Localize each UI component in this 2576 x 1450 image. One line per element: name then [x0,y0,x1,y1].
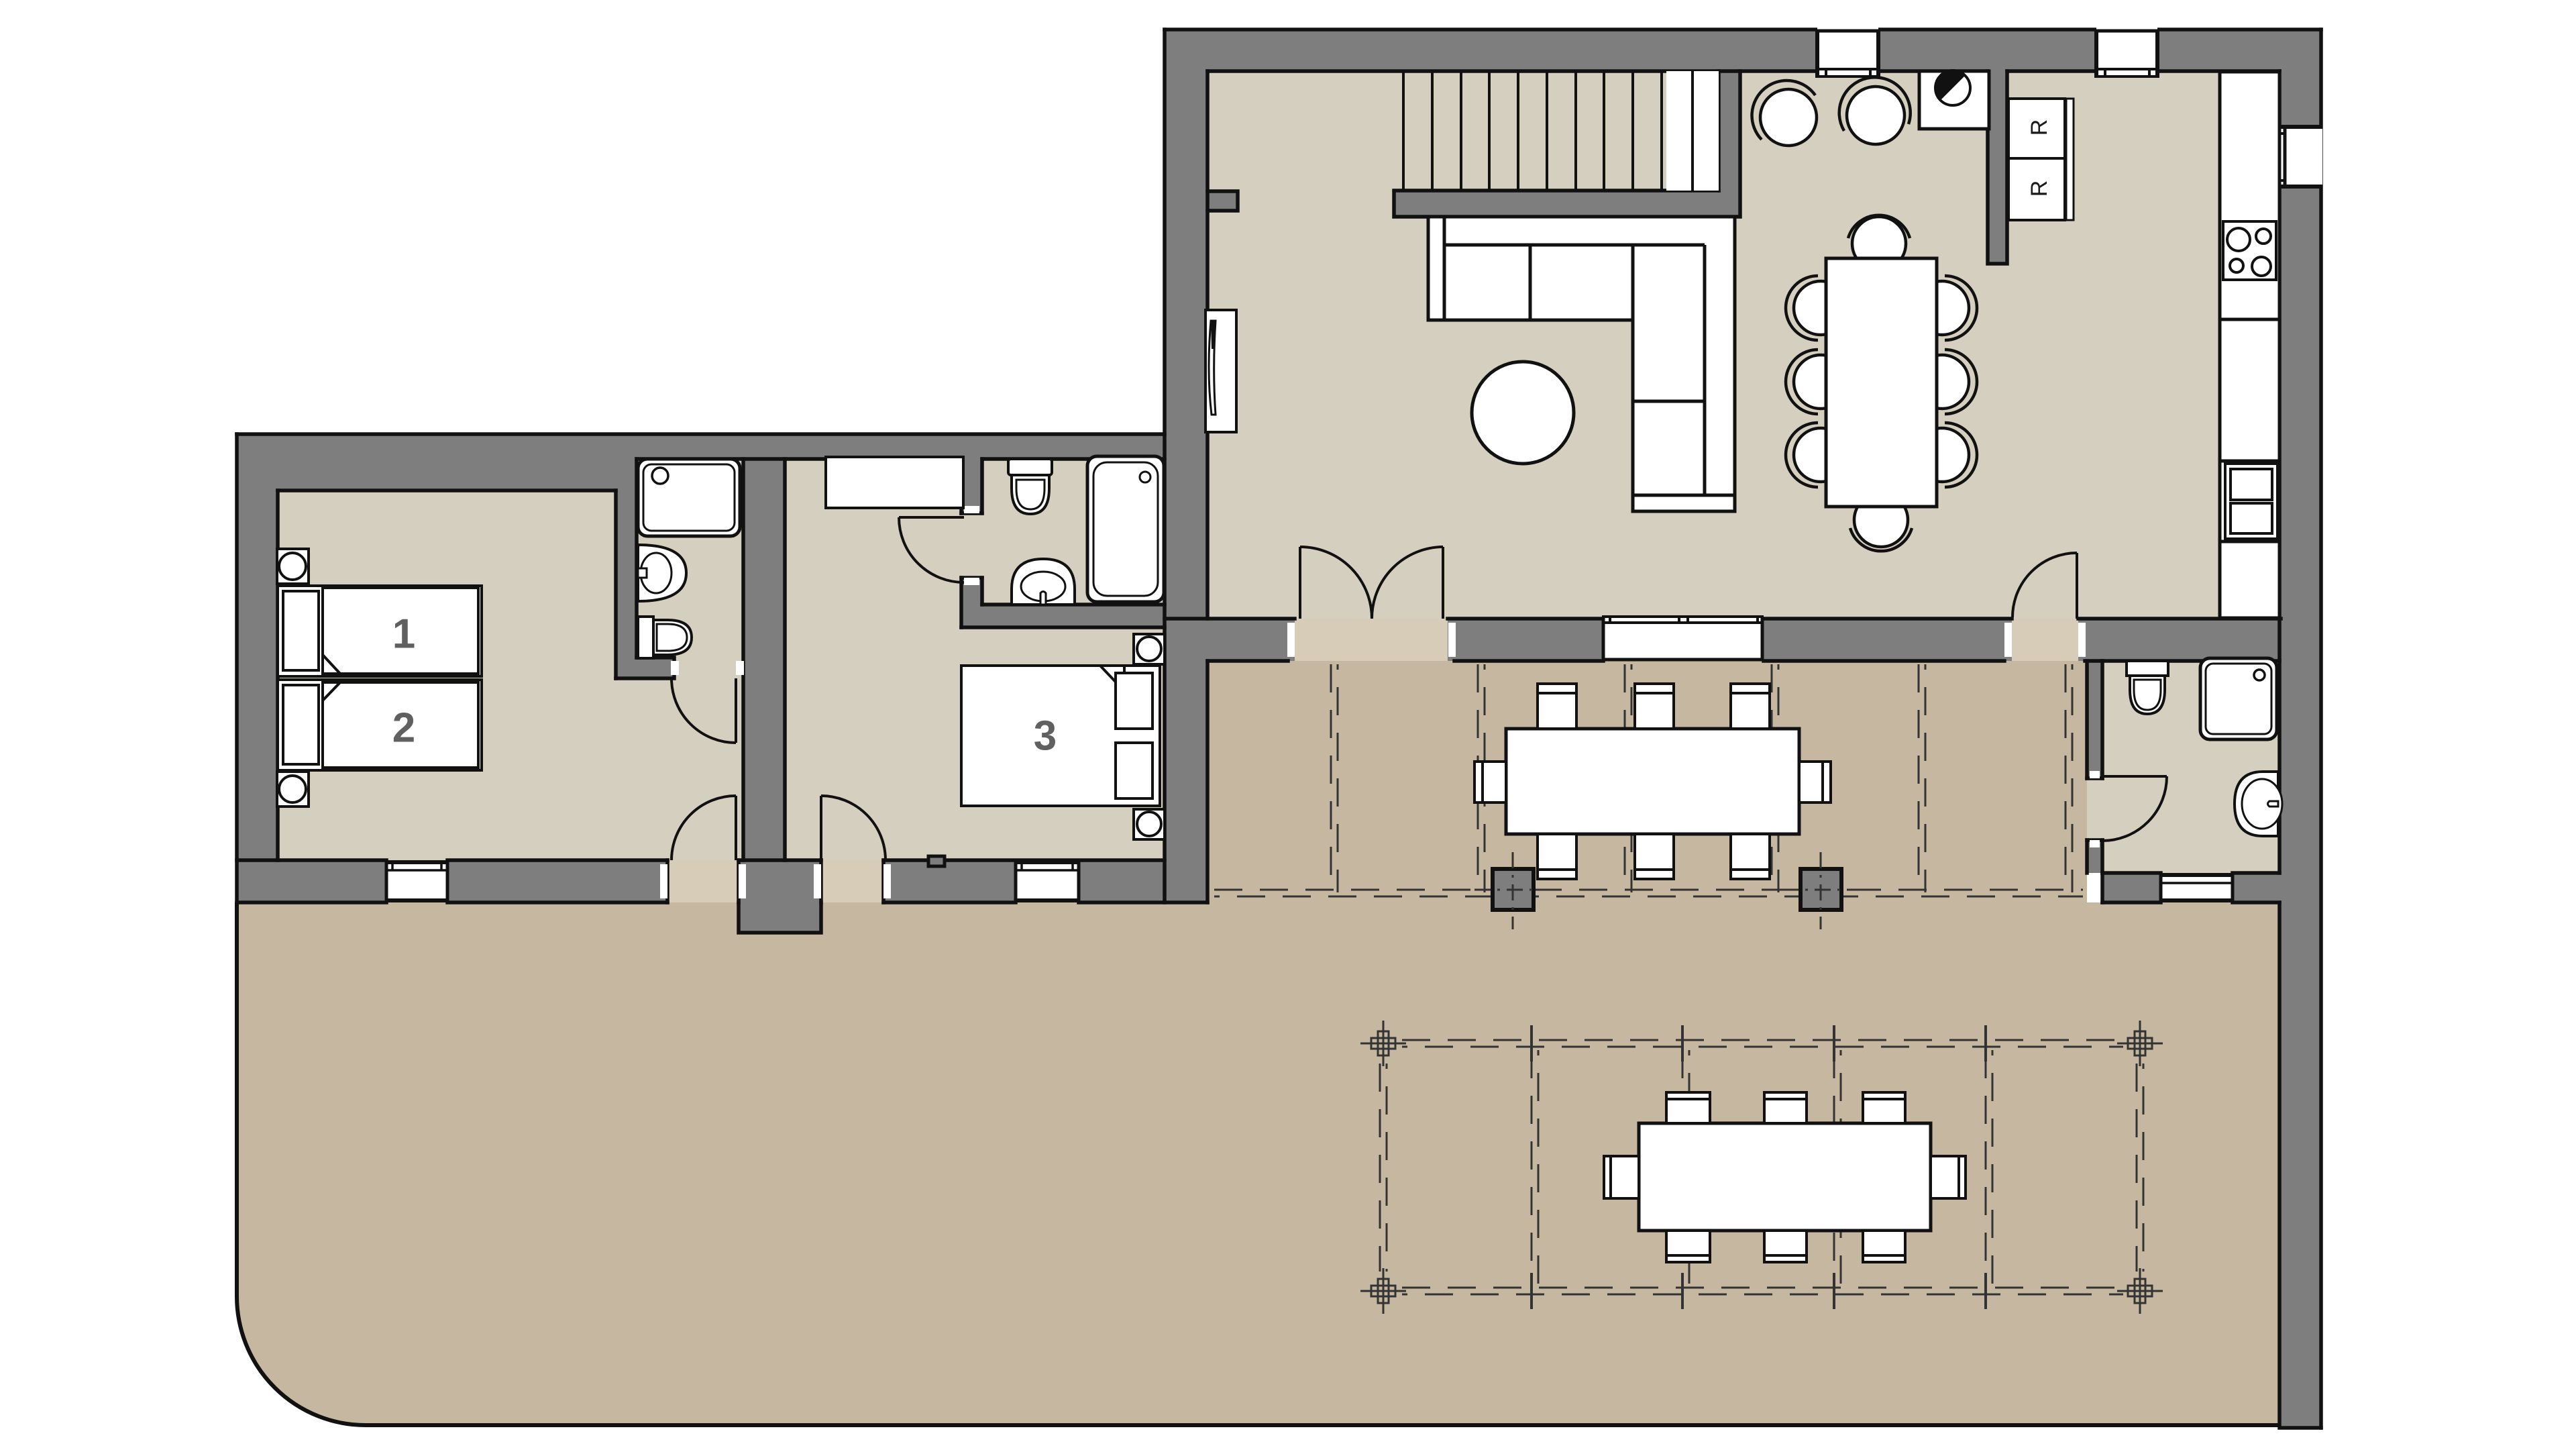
svg-text:R: R [2027,180,2052,197]
svg-text:1: 1 [392,611,415,658]
svg-text:R: R [2027,119,2052,136]
svg-text:3: 3 [1034,713,1057,760]
svg-text:2: 2 [392,705,415,752]
